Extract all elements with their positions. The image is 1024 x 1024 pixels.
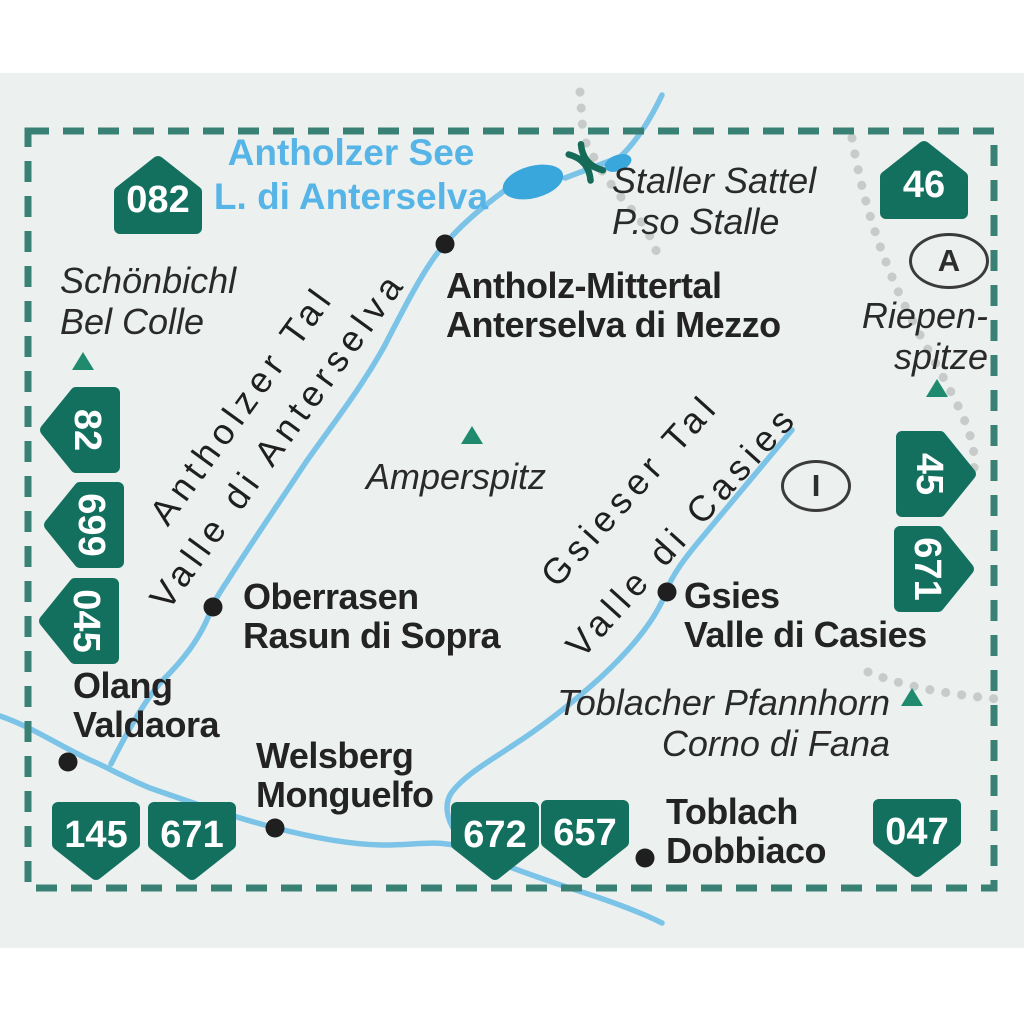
- lake-name-de: Antholzer See: [200, 131, 502, 175]
- peak-label-schoenbichl: Schönbichl Bel Colle: [60, 260, 236, 342]
- country-letter-italy: I: [812, 468, 821, 504]
- badge-number: 047: [872, 796, 962, 878]
- town-name-it: Valle di Casies: [684, 615, 927, 654]
- map-badge-047[interactable]: 047: [872, 796, 962, 878]
- town-name-de: Welsberg: [256, 736, 433, 775]
- map-badge-082[interactable]: 082: [113, 155, 203, 237]
- town-name-it: Dobbiaco: [666, 831, 826, 870]
- town-label-toblach: Toblach Dobbiaco: [666, 792, 826, 870]
- pass-name-de: Staller Sattel: [612, 160, 816, 201]
- town-name-de: Toblach: [666, 792, 826, 831]
- peak-name-de: Toblacher Pfannhorn: [500, 682, 890, 723]
- badge-number: 082: [113, 155, 203, 237]
- map-badge-657[interactable]: 657: [540, 797, 630, 879]
- badge-number: 657: [540, 797, 630, 879]
- badge-number: 46: [879, 140, 969, 222]
- lake-name-it: L. di Anterselva: [200, 175, 502, 219]
- pass-name-it: P.so Stalle: [612, 201, 816, 242]
- map-overview: 082 46 82 699 045 45 671 145 671 672 657: [0, 0, 1024, 1024]
- badge-number: 145: [51, 799, 141, 881]
- town-name-de: Gsies: [684, 576, 927, 615]
- badge-number: 82: [42, 389, 132, 471]
- peak-name-it: Corno di Fana: [500, 723, 890, 764]
- map-badge-45[interactable]: 45: [895, 429, 977, 519]
- peak-name-line1: Riepen-: [830, 295, 988, 336]
- peak-label-amperspitz: Amperspitz: [366, 456, 546, 497]
- town-name-it: Monguelfo: [256, 775, 433, 814]
- peak-name-line2: spitze: [830, 336, 988, 377]
- map-badge-46[interactable]: 46: [879, 140, 969, 222]
- pass-label: Staller Sattel P.so Stalle: [612, 160, 816, 242]
- peak-name-it: Bel Colle: [60, 301, 236, 342]
- peak-name: Amperspitz: [366, 456, 546, 497]
- country-letter-austria: A: [938, 243, 960, 279]
- town-label-welsberg: Welsberg Monguelfo: [256, 736, 433, 814]
- badge-number: 671: [147, 799, 237, 881]
- lake-label: Antholzer See L. di Anterselva: [200, 131, 502, 218]
- town-name-de: Olang: [73, 666, 219, 705]
- map-badge-82[interactable]: 82: [39, 385, 121, 475]
- town-name-de: Antholz-Mittertal: [446, 266, 781, 305]
- town-label-gsies: Gsies Valle di Casies: [684, 576, 927, 654]
- country-oval-italy: I: [781, 460, 851, 512]
- map-badge-045[interactable]: 045: [38, 576, 120, 666]
- town-label-oberrasen: Oberrasen Rasun di Sopra: [243, 577, 500, 655]
- town-label-antholz-mittertal: Antholz-Mittertal Anterselva di Mezzo: [446, 266, 781, 344]
- map-badge-672[interactable]: 672: [450, 799, 540, 881]
- badge-number: 045: [41, 580, 131, 662]
- badge-number: 699: [46, 484, 136, 566]
- town-name-it: Valdaora: [73, 705, 219, 744]
- country-oval-austria: A: [909, 233, 989, 289]
- map-badge-145[interactable]: 145: [51, 799, 141, 881]
- peak-label-pfannhorn: Toblacher Pfannhorn Corno di Fana: [500, 682, 890, 764]
- badge-number: 45: [884, 433, 974, 515]
- town-name-de: Oberrasen: [243, 577, 500, 616]
- peak-name-de: Schönbichl: [60, 260, 236, 301]
- town-label-olang: Olang Valdaora: [73, 666, 219, 744]
- map-badge-671-bottom[interactable]: 671: [147, 799, 237, 881]
- badge-number: 672: [450, 799, 540, 881]
- town-name-it: Rasun di Sopra: [243, 616, 500, 655]
- map-badge-699[interactable]: 699: [43, 480, 125, 570]
- town-name-it: Anterselva di Mezzo: [446, 305, 781, 344]
- peak-label-riepenspitze: Riepen- spitze: [830, 295, 988, 377]
